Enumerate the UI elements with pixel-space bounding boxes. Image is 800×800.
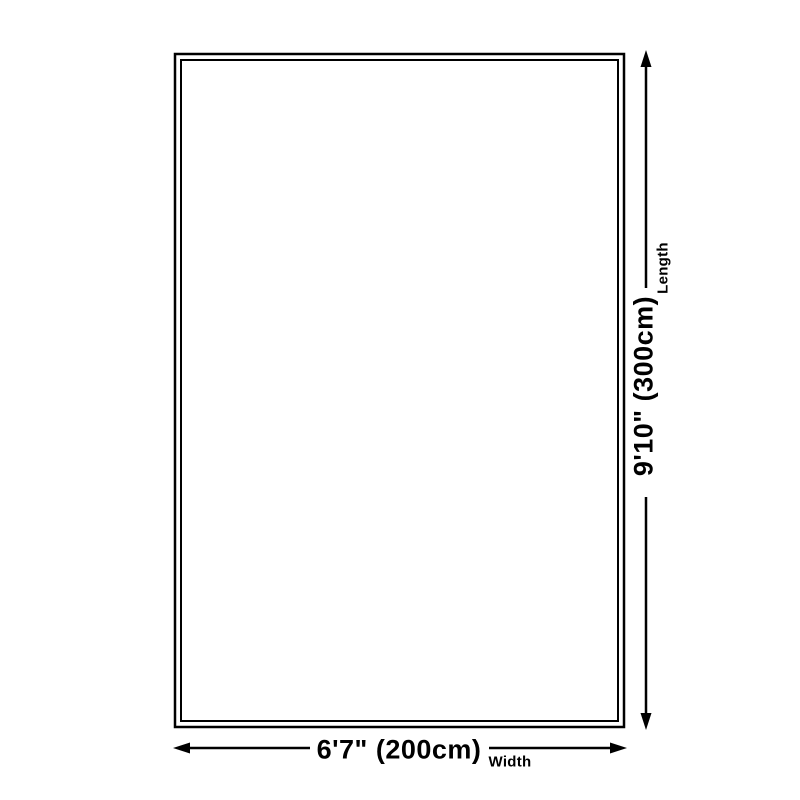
width-dimension-label: Width (488, 755, 531, 770)
size-diagram: 6'7" (200cm) Width 9'10" (300cm) Length (0, 0, 800, 800)
diagram-drawing (0, 0, 800, 800)
length-dimension-label: Length (656, 242, 671, 294)
rectangle-inner-border (181, 60, 618, 721)
arrow-down-icon (641, 713, 652, 730)
width-dimension-value: 6'7" (200cm) (317, 737, 482, 764)
arrow-up-icon (641, 50, 652, 67)
rectangle-outer-border (175, 54, 624, 727)
arrow-left-icon (173, 743, 190, 754)
length-dimension-value: 9'10" (300cm) (631, 296, 658, 476)
arrow-right-icon (610, 743, 627, 754)
